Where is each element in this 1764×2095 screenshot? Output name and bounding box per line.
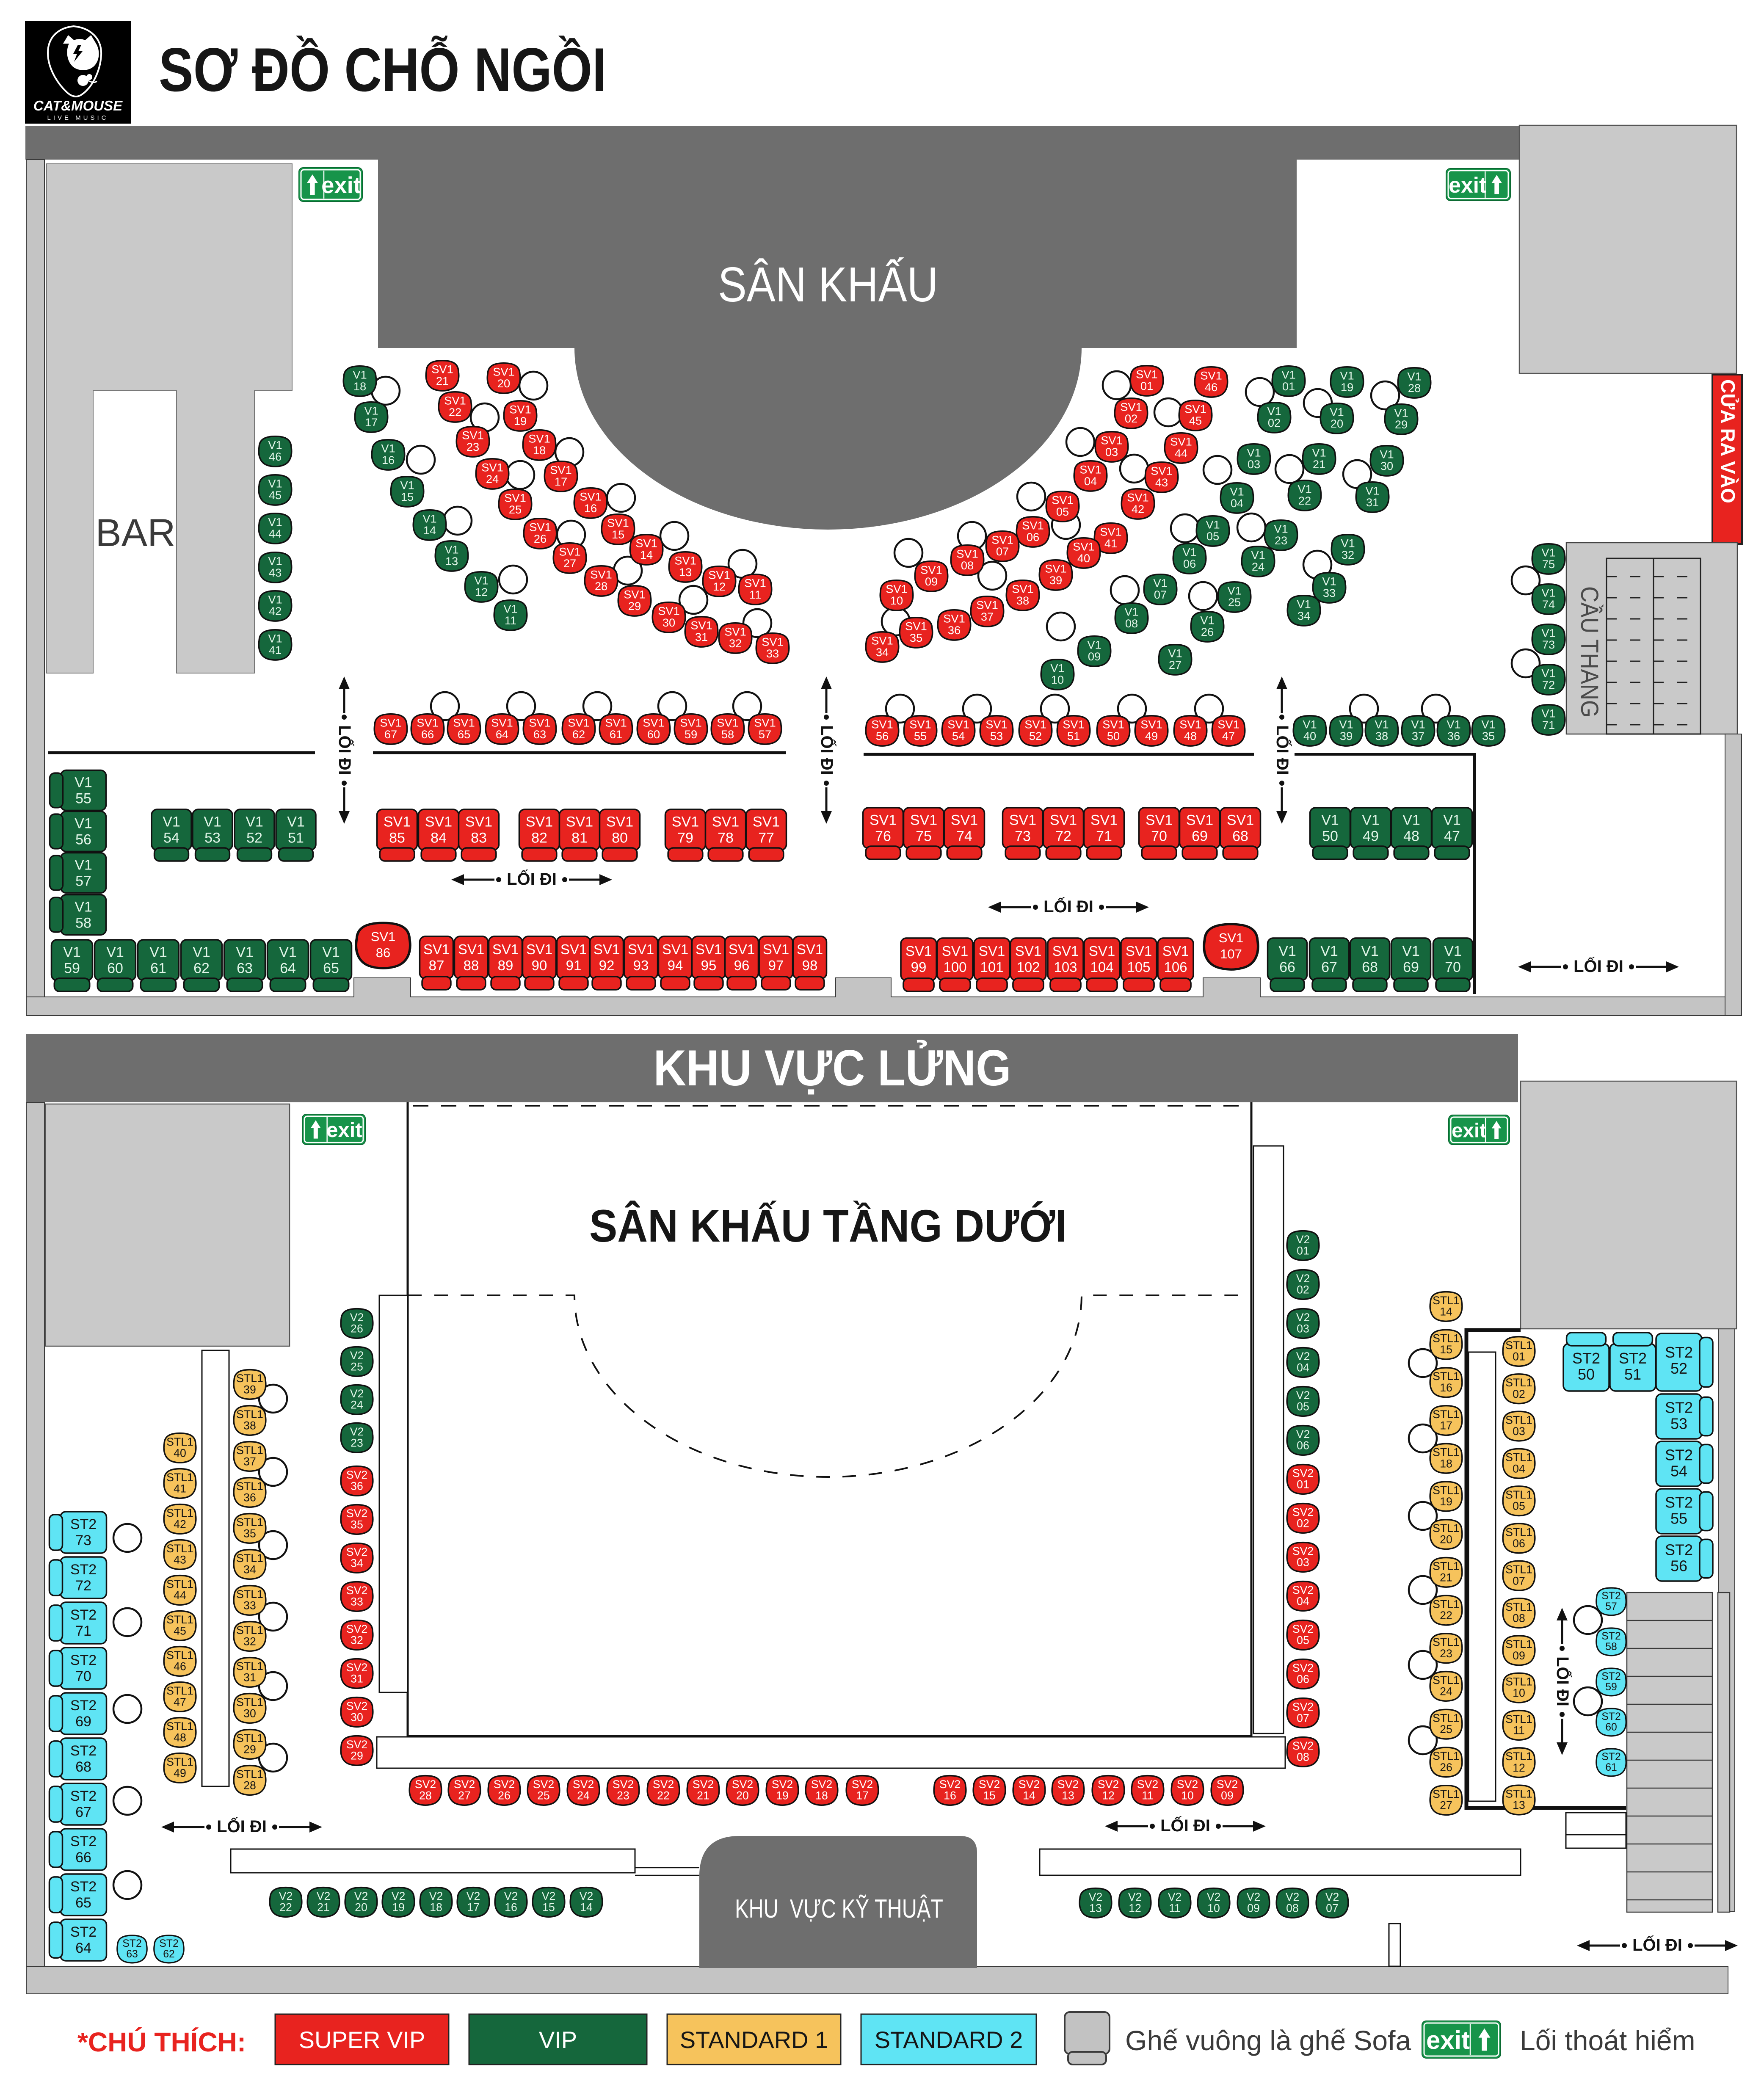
svg-text:ST2: ST2 (70, 1743, 97, 1759)
svg-text:54: 54 (163, 830, 179, 846)
svg-text:SV1: SV1 (909, 718, 931, 731)
svg-text:49: 49 (174, 1767, 186, 1780)
svg-text:12: 12 (1129, 1902, 1141, 1915)
svg-text:STL1: STL1 (1433, 1332, 1460, 1345)
svg-text:81: 81 (571, 830, 588, 846)
svg-text:56: 56 (876, 729, 889, 742)
svg-text:69: 69 (1403, 959, 1419, 975)
svg-text:19: 19 (514, 414, 527, 428)
svg-text:18: 18 (533, 444, 546, 457)
svg-text:22: 22 (657, 1789, 670, 1802)
svg-text:16: 16 (505, 1901, 517, 1914)
svg-text:14: 14 (1023, 1789, 1035, 1802)
svg-text:18: 18 (353, 380, 366, 393)
svg-text:05: 05 (1297, 1400, 1309, 1413)
svg-text:43: 43 (1155, 476, 1168, 489)
svg-text:02: 02 (1297, 1517, 1309, 1530)
svg-text:SV1: SV1 (431, 363, 453, 376)
svg-text:21: 21 (1313, 458, 1325, 471)
svg-text:SV1: SV1 (763, 941, 789, 957)
svg-text:SV1: SV1 (590, 568, 612, 581)
svg-text:SV1: SV1 (717, 716, 739, 729)
svg-text:05: 05 (1056, 505, 1069, 518)
svg-text:32: 32 (729, 637, 742, 650)
svg-text:75: 75 (1542, 558, 1555, 571)
svg-text:SV1: SV1 (504, 491, 526, 505)
svg-text:V2: V2 (279, 1890, 293, 1902)
svg-text:SV2: SV2 (1292, 1662, 1314, 1674)
svg-text:ST2: ST2 (70, 1562, 97, 1578)
svg-text:37: 37 (1412, 729, 1424, 742)
svg-text:V1: V1 (1481, 718, 1495, 731)
svg-text:STL1: STL1 (1505, 1488, 1532, 1501)
svg-text:27: 27 (1169, 658, 1182, 671)
svg-text:70: 70 (1445, 959, 1461, 975)
svg-text:V1: V1 (246, 814, 263, 830)
svg-text:20: 20 (497, 377, 510, 390)
svg-text:99: 99 (911, 959, 927, 975)
svg-text:04: 04 (1297, 1595, 1309, 1608)
svg-text:72: 72 (1542, 678, 1555, 691)
svg-text:65: 65 (323, 960, 339, 976)
svg-text:36: 36 (1447, 729, 1460, 742)
svg-text:87: 87 (429, 958, 444, 973)
svg-text:10: 10 (1051, 673, 1064, 686)
svg-text:93: 93 (633, 958, 649, 973)
svg-text:34: 34 (876, 646, 889, 659)
svg-text:SV2: SV2 (346, 1546, 367, 1558)
svg-text:72: 72 (1055, 828, 1071, 844)
svg-text:06: 06 (1513, 1537, 1525, 1550)
svg-text:07: 07 (996, 545, 1009, 558)
svg-text:V1: V1 (1447, 718, 1460, 731)
svg-text:LIVE MUSIC: LIVE MUSIC (47, 114, 108, 121)
svg-text:STL1: STL1 (1505, 1451, 1532, 1464)
svg-text:13: 13 (1513, 1799, 1525, 1811)
svg-text:29: 29 (351, 1750, 363, 1762)
svg-text:39: 39 (1049, 574, 1062, 587)
svg-text:V1: V1 (1312, 446, 1326, 459)
svg-text:ST2: ST2 (1665, 1446, 1693, 1464)
svg-text:CAT&MOUSE: CAT&MOUSE (33, 98, 123, 113)
svg-text:V1: V1 (75, 899, 92, 915)
svg-text:STL1: STL1 (1433, 1294, 1460, 1307)
svg-text:03: 03 (1297, 1556, 1309, 1569)
svg-text:12: 12 (713, 580, 726, 593)
svg-text:SV2: SV2 (613, 1778, 634, 1791)
svg-text:SV1: SV1 (371, 929, 396, 944)
svg-text:20: 20 (1331, 417, 1343, 430)
svg-text:SV1: SV1 (481, 461, 503, 474)
svg-text:45: 45 (269, 489, 282, 502)
svg-text:25: 25 (351, 1361, 363, 1373)
svg-text:exit: exit (1452, 1120, 1486, 1142)
svg-text:23: 23 (617, 1789, 629, 1802)
svg-text:43: 43 (174, 1554, 186, 1566)
svg-text:BAR: BAR (95, 511, 175, 555)
svg-text:18: 18 (815, 1789, 828, 1802)
svg-text:44: 44 (174, 1589, 186, 1602)
svg-text:ST2: ST2 (1665, 1541, 1693, 1559)
svg-text:31: 31 (243, 1671, 256, 1684)
svg-text:SV2: SV2 (732, 1778, 753, 1791)
svg-text:15: 15 (612, 528, 624, 541)
svg-text:V1: V1 (1407, 370, 1421, 383)
svg-text:17: 17 (856, 1789, 869, 1802)
svg-text:53: 53 (1670, 1415, 1687, 1433)
svg-text:08: 08 (1125, 617, 1138, 630)
svg-text:V1: V1 (1443, 812, 1461, 828)
svg-text:SV1: SV1 (943, 612, 965, 625)
svg-text:11: 11 (505, 614, 516, 627)
svg-text:103: 103 (1054, 959, 1077, 975)
svg-text:SV1: SV1 (947, 718, 969, 731)
svg-text:73: 73 (1542, 638, 1555, 651)
svg-text:SV1: SV1 (870, 812, 897, 828)
svg-text:V1: V1 (1394, 406, 1408, 420)
svg-text:13: 13 (679, 566, 692, 579)
svg-text:V2: V2 (1296, 1389, 1310, 1402)
svg-text:V1: V1 (1297, 598, 1311, 611)
svg-text:25: 25 (537, 1789, 550, 1802)
svg-text:SV2: SV2 (979, 1778, 1000, 1791)
svg-text:STANDARD 1: STANDARD 1 (680, 2026, 828, 2053)
svg-text:V1: V1 (1050, 662, 1064, 675)
svg-text:SV1: SV1 (708, 569, 730, 582)
svg-text:52: 52 (1029, 729, 1042, 742)
svg-text:SV1: SV1 (1219, 930, 1244, 945)
svg-text:34: 34 (1297, 609, 1310, 622)
svg-text:ST2: ST2 (70, 1698, 97, 1714)
svg-text:STL1: STL1 (236, 1372, 263, 1385)
svg-text:V2: V2 (1286, 1891, 1300, 1903)
svg-text:46: 46 (174, 1660, 186, 1673)
svg-text:SV1: SV1 (1073, 540, 1095, 553)
svg-text:V1: V1 (322, 944, 340, 960)
svg-text:SV1: SV1 (1045, 562, 1067, 575)
svg-text:STL1: STL1 (236, 1624, 263, 1637)
svg-text:56: 56 (75, 831, 91, 847)
svg-text:V1: V1 (1322, 575, 1336, 588)
svg-text:STL1: STL1 (1433, 1788, 1460, 1800)
svg-text:05: 05 (1513, 1500, 1525, 1513)
svg-text:SV1: SV1 (951, 812, 978, 828)
svg-text:ST2: ST2 (1665, 1494, 1693, 1511)
svg-text:SV1: SV1 (493, 365, 515, 378)
svg-text:SV1: SV1 (1101, 434, 1123, 447)
svg-text:SV1: SV1 (380, 716, 402, 729)
svg-text:57: 57 (1605, 1601, 1617, 1612)
svg-text:SV1: SV1 (606, 814, 633, 830)
svg-text:ST2: ST2 (70, 1652, 97, 1668)
svg-text:STL1: STL1 (1433, 1598, 1460, 1610)
svg-text:STL1: STL1 (166, 1613, 193, 1626)
svg-text:STL1: STL1 (1433, 1712, 1460, 1725)
svg-text:SV2: SV2 (1019, 1778, 1040, 1791)
svg-text:59: 59 (685, 728, 697, 741)
svg-text:LỐI ĐI: LỐI ĐI (817, 725, 837, 775)
svg-text:28: 28 (1408, 381, 1421, 395)
svg-text:SV2: SV2 (346, 1468, 367, 1481)
svg-text:STL1: STL1 (1505, 1601, 1532, 1613)
svg-text:86: 86 (376, 945, 390, 960)
svg-text:SV2: SV2 (939, 1778, 961, 1791)
svg-text:53: 53 (990, 729, 1003, 742)
svg-text:SV1: SV1 (1136, 368, 1158, 381)
svg-text:V1: V1 (400, 479, 414, 492)
svg-text:V1: V1 (63, 944, 81, 960)
svg-text:ST2: ST2 (70, 1516, 97, 1532)
svg-text:V1: V1 (287, 814, 305, 830)
svg-text:15: 15 (1440, 1343, 1452, 1356)
svg-text:LỐI ĐI: LỐI ĐI (1043, 897, 1093, 916)
svg-text:24: 24 (486, 472, 499, 486)
svg-text:ST2: ST2 (70, 1833, 97, 1849)
svg-text:SV1: SV1 (1100, 525, 1122, 538)
svg-text:V2: V2 (350, 1349, 364, 1362)
svg-text:V1: V1 (1200, 614, 1214, 627)
svg-text:SV2: SV2 (772, 1778, 793, 1791)
svg-text:SV2: SV2 (533, 1778, 554, 1791)
svg-text:04: 04 (1513, 1462, 1525, 1475)
svg-text:15: 15 (983, 1789, 996, 1802)
svg-text:104: 104 (1090, 959, 1113, 975)
svg-text:V1: V1 (75, 774, 92, 790)
svg-text:SV1: SV1 (754, 716, 776, 729)
svg-text:exit: exit (1449, 173, 1486, 197)
svg-text:04: 04 (1084, 475, 1097, 488)
svg-text:41: 41 (269, 643, 282, 657)
svg-text:102: 102 (1016, 959, 1040, 975)
svg-text:V2: V2 (392, 1890, 406, 1902)
svg-text:V2: V2 (354, 1890, 368, 1902)
svg-text:SV2: SV2 (1292, 1623, 1314, 1635)
svg-text:65: 65 (75, 1895, 91, 1911)
svg-text:37: 37 (243, 1455, 256, 1468)
svg-text:SV1: SV1 (1217, 718, 1239, 731)
svg-text:SV1: SV1 (628, 941, 654, 957)
svg-text:16: 16 (382, 453, 395, 466)
svg-text:*CHÚ THÍCH:: *CHÚ THÍCH: (77, 2027, 246, 2057)
svg-text:SV1: SV1 (1052, 494, 1074, 507)
svg-text:ST2: ST2 (1601, 1631, 1620, 1642)
svg-text:16: 16 (944, 1789, 956, 1802)
svg-text:SV1: SV1 (560, 941, 587, 957)
svg-text:12: 12 (1102, 1789, 1115, 1802)
svg-text:V1: V1 (1541, 667, 1555, 680)
svg-text:STL1: STL1 (166, 1578, 193, 1590)
svg-text:SV1: SV1 (956, 547, 978, 560)
svg-text:19: 19 (776, 1789, 789, 1802)
svg-text:29: 29 (1395, 418, 1408, 431)
svg-text:47: 47 (1444, 828, 1460, 844)
svg-text:49: 49 (1145, 729, 1158, 742)
svg-text:47: 47 (1222, 729, 1235, 742)
svg-text:52: 52 (1670, 1360, 1687, 1377)
svg-text:21: 21 (1440, 1571, 1452, 1584)
svg-text:45: 45 (1189, 414, 1202, 427)
svg-text:ST2: ST2 (1601, 1671, 1620, 1682)
svg-text:V1: V1 (1541, 707, 1555, 720)
svg-text:26: 26 (1440, 1761, 1452, 1774)
svg-text:V2: V2 (1325, 1891, 1339, 1903)
svg-text:SV1: SV1 (797, 941, 823, 957)
svg-text:ST2: ST2 (70, 1924, 97, 1940)
svg-text:11: 11 (1169, 1902, 1181, 1915)
svg-text:SV1: SV1 (1022, 519, 1044, 532)
svg-text:KHU VỰC LỬNG: KHU VỰC LỬNG (654, 1039, 1011, 1096)
svg-text:70: 70 (1151, 828, 1167, 844)
svg-text:33: 33 (243, 1599, 256, 1612)
svg-text:64: 64 (496, 728, 508, 741)
svg-text:LỐI ĐI: LỐI ĐI (507, 869, 557, 889)
svg-text:29: 29 (628, 599, 641, 613)
svg-text:26: 26 (498, 1789, 511, 1802)
svg-text:02: 02 (1513, 1388, 1525, 1400)
svg-text:LỐI ĐI: LỐI ĐI (1553, 1656, 1573, 1706)
svg-text:32: 32 (1342, 548, 1354, 561)
svg-text:51: 51 (1067, 729, 1080, 742)
svg-text:21: 21 (436, 374, 449, 387)
svg-text:STL1: STL1 (1433, 1674, 1460, 1686)
svg-text:76: 76 (875, 828, 891, 844)
svg-text:LỐI ĐI: LỐI ĐI (1273, 725, 1292, 775)
svg-text:06: 06 (1297, 1673, 1309, 1686)
svg-text:09: 09 (1088, 650, 1101, 663)
svg-text:STL1: STL1 (166, 1471, 193, 1484)
svg-text:17: 17 (467, 1901, 480, 1914)
svg-text:V2: V2 (1128, 1891, 1142, 1903)
svg-text:04: 04 (1231, 497, 1243, 510)
svg-text:73: 73 (75, 1532, 91, 1548)
svg-text:V1: V1 (1339, 718, 1353, 731)
svg-text:ST2: ST2 (1572, 1350, 1600, 1367)
svg-text:STL1: STL1 (166, 1720, 193, 1733)
svg-text:Lối thoát hiểm: Lối thoát hiểm (1520, 2025, 1695, 2056)
svg-text:SV1: SV1 (871, 634, 893, 647)
svg-text:17: 17 (555, 475, 567, 488)
svg-text:SV1: SV1 (986, 718, 1008, 731)
svg-text:18: 18 (430, 1901, 442, 1914)
svg-text:ST2: ST2 (70, 1607, 97, 1623)
svg-text:35: 35 (910, 631, 922, 644)
svg-text:35: 35 (243, 1527, 256, 1540)
svg-text:SV1: SV1 (1050, 812, 1077, 828)
svg-text:SV2: SV2 (1057, 1778, 1079, 1791)
svg-text:54: 54 (952, 729, 965, 742)
svg-text:V1: V1 (1402, 812, 1420, 828)
svg-text:27: 27 (563, 557, 576, 570)
svg-text:14: 14 (423, 524, 436, 537)
svg-text:V2: V2 (1296, 1428, 1310, 1441)
svg-text:SV1: SV1 (529, 521, 551, 534)
svg-text:66: 66 (1279, 959, 1295, 975)
svg-text:CẦU THANG: CẦU THANG (1576, 586, 1603, 718)
svg-text:66: 66 (421, 728, 434, 741)
svg-text:24: 24 (1252, 560, 1264, 573)
svg-text:01: 01 (1513, 1350, 1525, 1363)
svg-text:V2: V2 (1296, 1272, 1310, 1285)
svg-text:V1: V1 (1375, 718, 1389, 731)
svg-text:ST2: ST2 (1601, 1711, 1620, 1722)
svg-text:V1: V1 (1087, 638, 1101, 651)
svg-text:92: 92 (599, 958, 615, 973)
svg-text:SV2: SV2 (1098, 1778, 1119, 1791)
svg-text:28: 28 (595, 580, 607, 593)
svg-text:SV1: SV1 (566, 814, 593, 830)
svg-text:V1: V1 (1320, 943, 1338, 959)
svg-text:V2: V2 (1247, 1891, 1261, 1903)
svg-text:30: 30 (1380, 459, 1393, 472)
svg-text:SV1: SV1 (1120, 400, 1142, 414)
svg-text:V2: V2 (1296, 1233, 1310, 1246)
svg-text:08: 08 (961, 559, 974, 572)
svg-text:54: 54 (1670, 1463, 1687, 1480)
svg-text:37: 37 (981, 610, 994, 623)
svg-text:36: 36 (243, 1491, 256, 1504)
svg-text:24: 24 (351, 1399, 363, 1411)
svg-text:V1: V1 (193, 944, 210, 960)
svg-text:SV1: SV1 (905, 943, 932, 959)
svg-text:SV2: SV2 (494, 1778, 515, 1791)
svg-text:14: 14 (580, 1901, 593, 1914)
svg-text:94: 94 (668, 958, 683, 973)
svg-text:60: 60 (647, 728, 660, 741)
svg-text:KHU VỰC KỸ THUẬT: KHU VỰC KỸ THUẬT (735, 1894, 943, 1924)
svg-text:V2: V2 (350, 1311, 364, 1324)
svg-text:exit: exit (321, 172, 361, 198)
svg-text:STL1: STL1 (236, 1732, 263, 1744)
svg-text:51: 51 (1624, 1366, 1641, 1383)
svg-text:SV1: SV1 (672, 814, 699, 830)
svg-text:SV2: SV2 (415, 1778, 436, 1791)
svg-text:67: 67 (1321, 959, 1337, 975)
svg-text:64: 64 (75, 1940, 91, 1956)
svg-text:SV1: SV1 (680, 716, 702, 729)
svg-text:SV1: SV1 (662, 941, 688, 957)
svg-text:SV2: SV2 (1292, 1545, 1314, 1557)
svg-text:V1: V1 (1341, 537, 1355, 550)
svg-text:V2: V2 (350, 1425, 364, 1438)
svg-text:13: 13 (1062, 1789, 1074, 1802)
svg-text:V2: V2 (504, 1890, 518, 1902)
svg-text:SV2: SV2 (1292, 1584, 1314, 1596)
svg-text:09: 09 (1221, 1789, 1234, 1802)
svg-text:STL1: STL1 (1505, 1750, 1532, 1763)
svg-text:59: 59 (64, 960, 80, 976)
svg-text:07: 07 (1513, 1574, 1525, 1587)
svg-text:57: 57 (75, 873, 91, 889)
svg-text:ST2: ST2 (1601, 1590, 1620, 1602)
svg-text:V1: V1 (364, 404, 378, 417)
svg-text:V2: V2 (1296, 1311, 1310, 1324)
svg-text:V1: V1 (353, 368, 367, 381)
svg-text:35: 35 (351, 1518, 363, 1531)
svg-text:SV1: SV1 (674, 554, 696, 567)
svg-text:61: 61 (150, 960, 166, 976)
svg-text:85: 85 (389, 830, 405, 846)
svg-text:03: 03 (1297, 1322, 1309, 1335)
svg-text:SÂN KHẤU TẦNG DƯỚI: SÂN KHẤU TẦNG DƯỚI (589, 1200, 1067, 1251)
svg-text:07: 07 (1154, 588, 1167, 601)
svg-text:88: 88 (464, 958, 479, 973)
svg-text:SV1: SV1 (724, 625, 746, 638)
svg-text:ST2: ST2 (70, 1879, 97, 1895)
svg-text:SV1: SV1 (559, 545, 581, 558)
svg-text:60: 60 (1605, 1722, 1617, 1733)
svg-text:26: 26 (1201, 625, 1214, 638)
svg-text:V2: V2 (542, 1890, 556, 1902)
